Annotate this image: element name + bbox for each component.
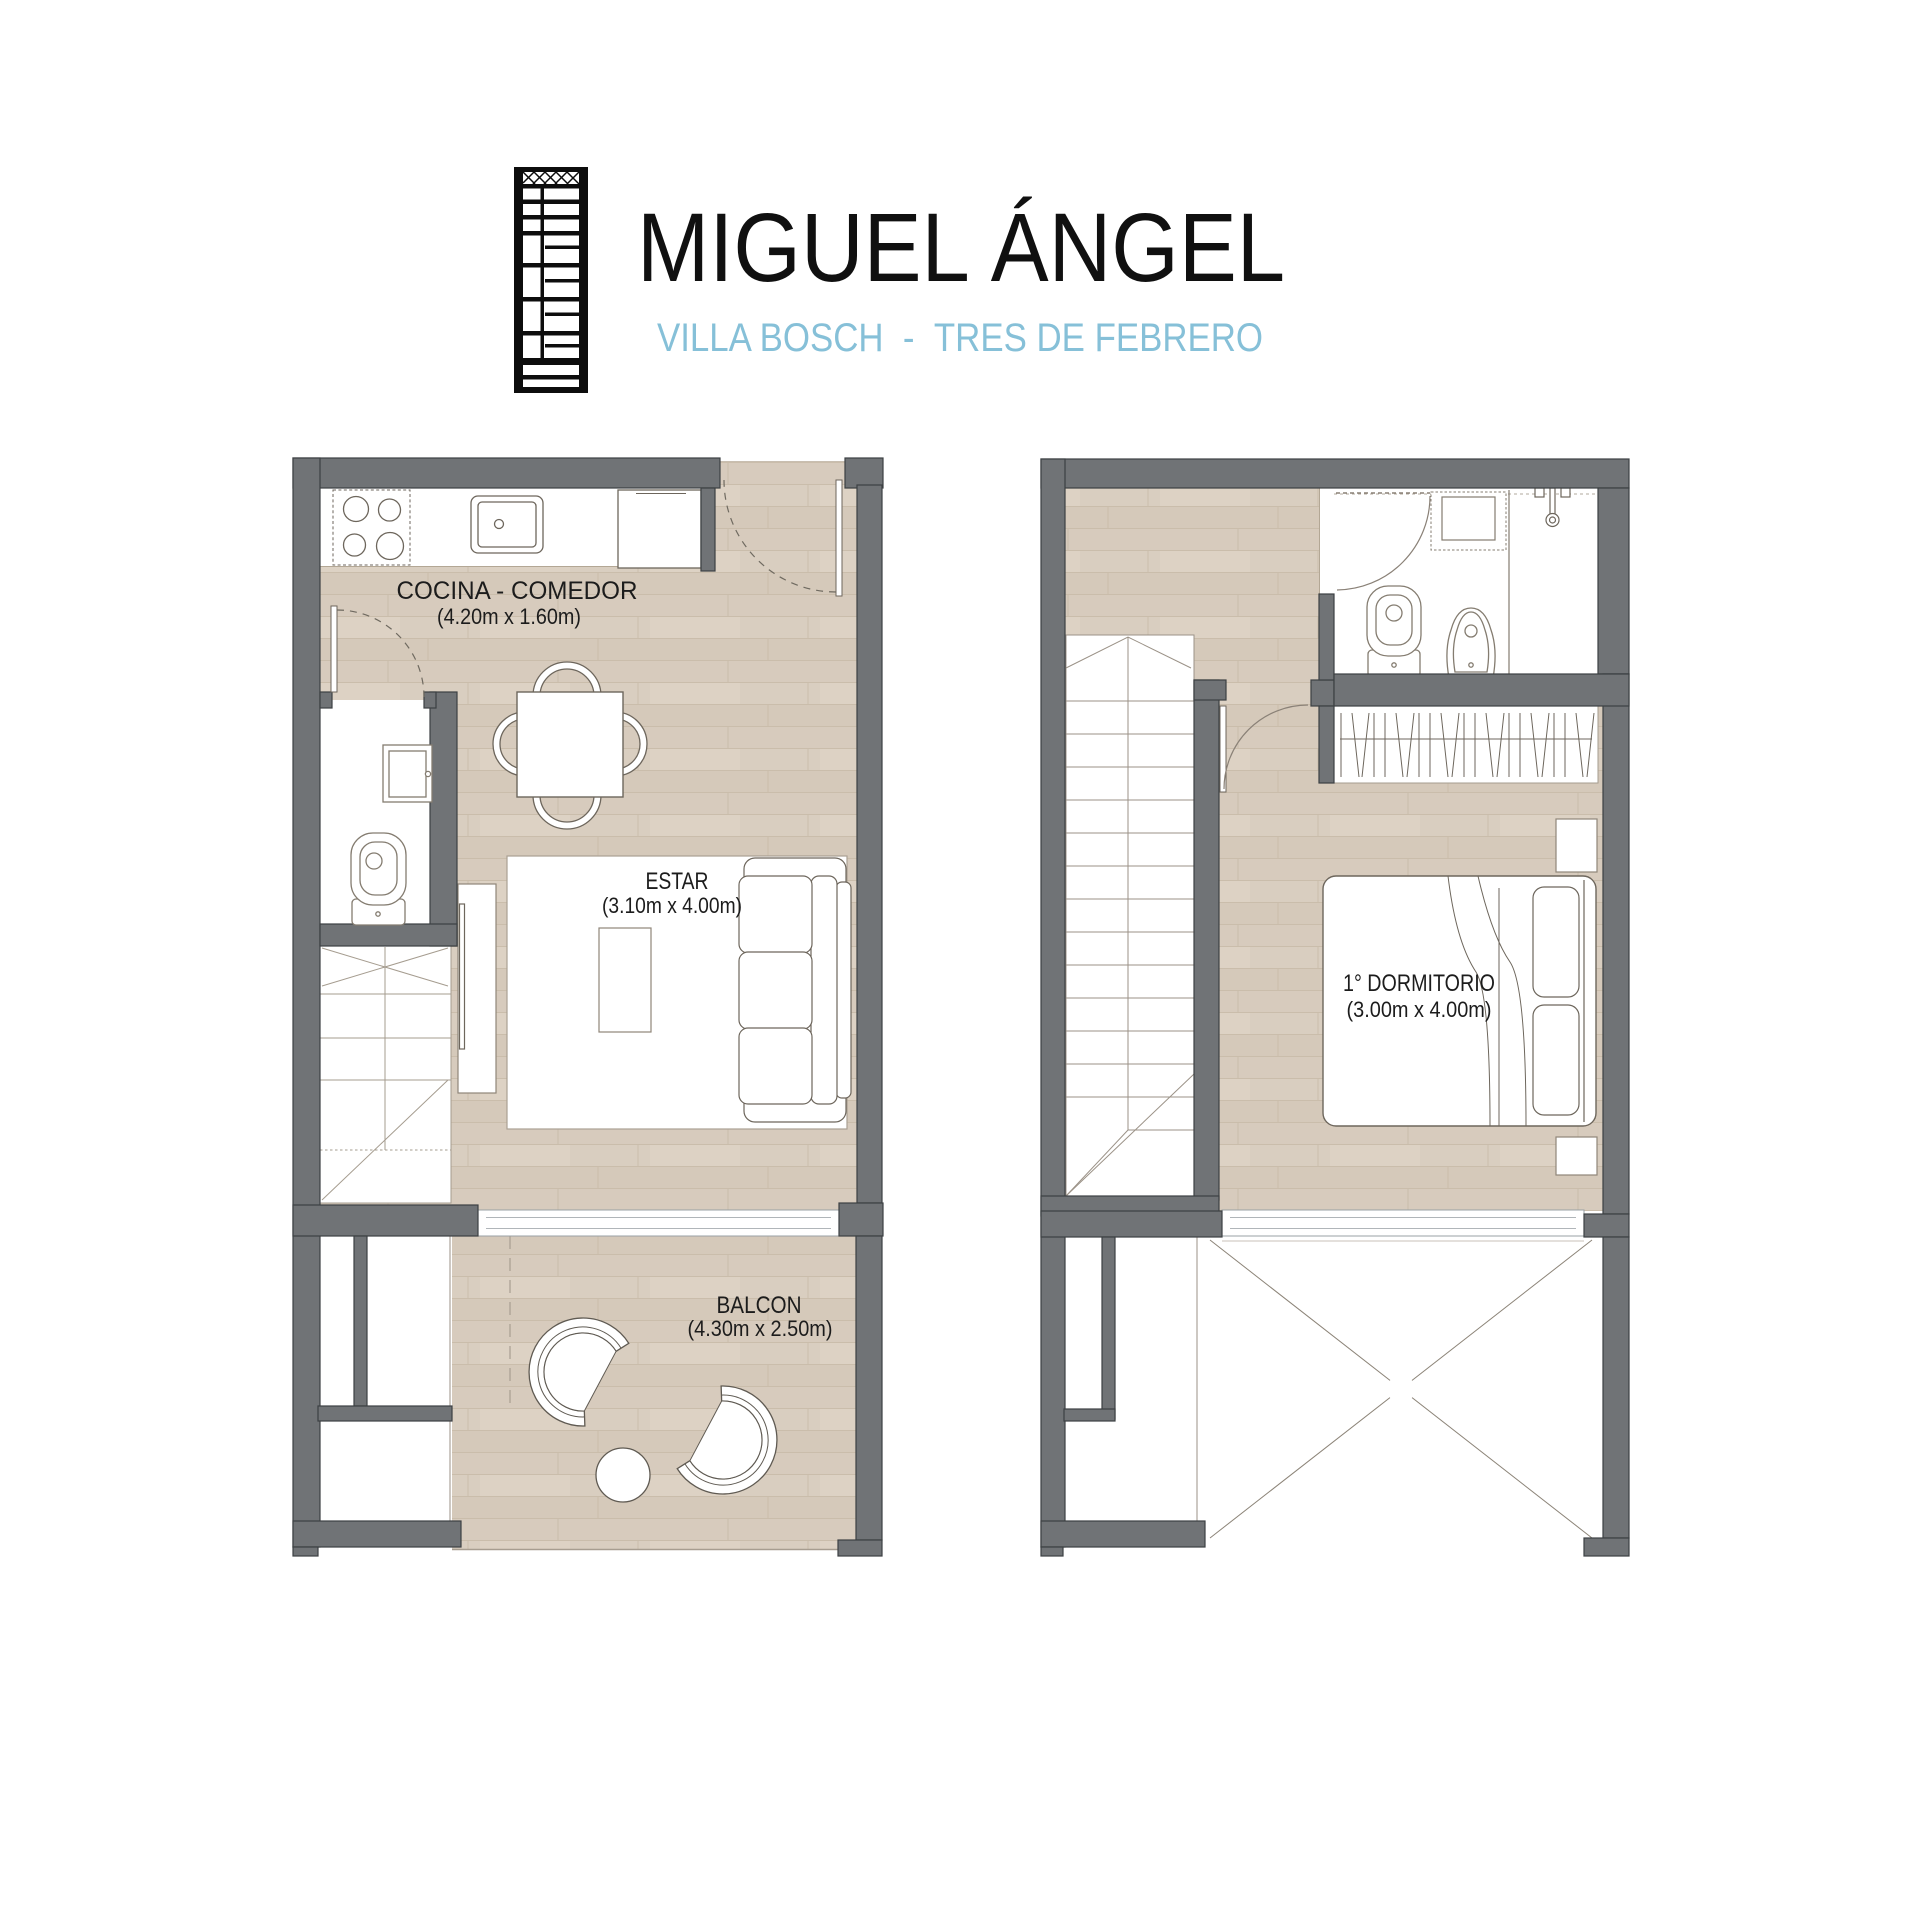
svg-text:(4.20m x 1.60m): (4.20m x 1.60m)	[437, 604, 581, 629]
svg-text:VILLA BOSCH - TRES DE FEBRER: VILLA BOSCH - TRES DE FEBRERO	[657, 316, 1263, 360]
svg-text:(3.00m x 4.00m): (3.00m x 4.00m)	[1347, 997, 1492, 1022]
svg-text:1° DORMITORIO: 1° DORMITORIO	[1343, 970, 1495, 997]
svg-text:(3.10m x 4.00m): (3.10m x 4.00m)	[602, 893, 742, 918]
svg-text:MIGUEL ÁNGEL: MIGUEL ÁNGEL	[637, 193, 1285, 302]
svg-text:ESTAR: ESTAR	[646, 868, 709, 895]
svg-text:BALCON: BALCON	[717, 1292, 802, 1319]
svg-text:(4.30m x 2.50m): (4.30m x 2.50m)	[688, 1316, 833, 1341]
svg-text:COCINA - COMEDOR: COCINA - COMEDOR	[397, 577, 638, 605]
